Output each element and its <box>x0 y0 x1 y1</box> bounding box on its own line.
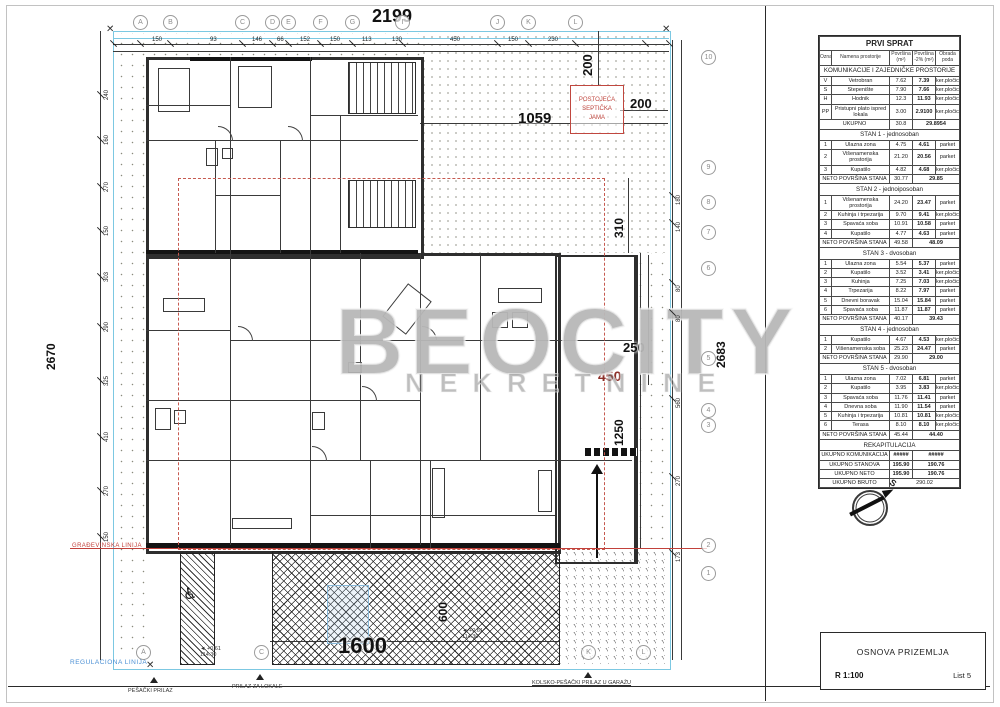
bathtub <box>155 408 171 430</box>
cell-floor: ker.pločice <box>936 278 960 287</box>
sink <box>222 148 233 159</box>
grid-bubble-C: C <box>235 15 250 30</box>
grid-bubble-3: 3 <box>701 418 716 433</box>
dim-bottom-total: 1600 <box>338 633 387 659</box>
table-section: STAN 3 - dvosoban <box>820 248 960 259</box>
dim-label: 450 <box>450 37 460 43</box>
grid-bubble-K: K <box>521 15 536 30</box>
cell-area-net: 7.03 <box>913 278 936 287</box>
cell-room: Ulazna zona <box>832 259 890 268</box>
cell-code: 2 <box>820 150 832 166</box>
cell-total-v1: 29.90 <box>890 354 913 363</box>
cell-floor: parket <box>936 402 960 411</box>
table-row: HHodnik12.311.93ker.pločice <box>820 95 960 104</box>
cell-code: 2 <box>820 384 832 393</box>
table-recap-row: UKUPNO KOMUNIKACIJA########## <box>820 451 960 460</box>
table-section: STAN 5 - dvosoban <box>820 363 960 374</box>
cell-floor: parket <box>936 296 960 305</box>
dim-label: 560 <box>676 398 682 408</box>
table-row: 2Kuhinja i trpezarija9.709.41ker.pločice <box>820 211 960 220</box>
table-recap-row: UKUPNO STANOVA195.90190.76 <box>820 460 960 469</box>
cell-code: 4 <box>820 402 832 411</box>
cell-room: Ulazna zona <box>832 140 890 149</box>
grid-bubble-L: L <box>568 15 583 30</box>
cell-code: 6 <box>820 421 832 430</box>
grid-bubble-6: 6 <box>701 261 716 276</box>
cell-total-v2: 29.85 <box>913 175 960 184</box>
cell-code: 3 <box>820 278 832 287</box>
cell-area-net: 7.66 <box>913 86 936 95</box>
table-total-row: NETO POVRŠINA STANA40.1739.43 <box>820 315 960 324</box>
cell-area-net: 5.37 <box>913 259 936 268</box>
dim-label: 290 <box>104 322 110 332</box>
garage-access-label: KOLSKO-PEŠAČKI PRILAZ U GARAŽU <box>532 680 631 686</box>
wall <box>190 57 312 61</box>
cell-area: 4.67 <box>890 335 913 344</box>
cell-recap-label: UKUPNO KOMUNIKACIJA <box>820 451 890 460</box>
staircase <box>348 62 416 114</box>
cell-area-net: 10.81 <box>913 412 936 421</box>
building-line-label: GRAĐEVINSKA LINIJA <box>72 543 142 549</box>
elev-abs-value: 114.30 <box>462 634 478 640</box>
table-row: 3Kuhinja7.257.03ker.pločice <box>820 278 960 287</box>
cell-code: 1 <box>820 259 832 268</box>
grid-bubble-J: J <box>490 15 505 30</box>
grid-bubble-7: 7 <box>701 225 716 240</box>
dim-label: 230 <box>548 37 558 43</box>
septic-label-2: SEPTIČKA <box>582 105 612 114</box>
cell-total-v1: 49.58 <box>890 239 913 248</box>
cell-code: 1 <box>820 140 832 149</box>
cell-area: 11.76 <box>890 393 913 402</box>
grid-bubble-D: D <box>265 15 280 30</box>
cell-total-label: UKUPNO <box>820 120 890 129</box>
sheet-number: List 5 <box>953 671 971 680</box>
cell-code: 5 <box>820 296 832 305</box>
partition <box>310 115 418 116</box>
table-row: 4Trpezarija8.227.97parket <box>820 287 960 296</box>
dim-label: 240 <box>104 90 110 100</box>
cell-code: 4 <box>820 287 832 296</box>
dim-plot: 1059 <box>518 110 551 127</box>
spot-elevation: ◄ +0.61 114.30 <box>200 646 221 658</box>
cell-area-net: 4.53 <box>913 335 936 344</box>
dim-label: 410 <box>104 432 110 442</box>
cell-area-net: 2.9100 <box>913 104 936 120</box>
cell-room: Višenamenska prostorija <box>832 195 890 211</box>
dim-label: 150 <box>152 37 162 43</box>
cell-floor: parket <box>936 306 960 315</box>
cell-area: 11.87 <box>890 306 913 315</box>
partition <box>146 140 418 141</box>
cell-bruto-value: 290.02 <box>890 479 960 488</box>
cell-floor: ker.pločice <box>936 76 960 85</box>
north-arrow: S <box>840 478 900 534</box>
elev-abs-value: 114.30 <box>200 652 216 658</box>
cell-room: Spavaća soba <box>832 393 890 402</box>
cell-room: Kuhinja <box>832 278 890 287</box>
cell-recap-v1: ##### <box>890 451 913 460</box>
spot-elevation: ◄ +0.61 114.30 <box>462 628 483 640</box>
cell-area: 7.25 <box>890 278 913 287</box>
cell-floor: ker.pločice <box>936 384 960 393</box>
table-total-row: NETO POVRŠINA STANA49.5848.09 <box>820 239 960 248</box>
cell-area-net: 6.81 <box>913 374 936 383</box>
cell-area-net: 3.41 <box>913 268 936 277</box>
cell-room: Terasa <box>832 421 890 430</box>
cell-floor: parket <box>936 287 960 296</box>
table-row: 3Kupatilo4.824.68ker.pločice <box>820 165 960 174</box>
wheelchair-icon: ♿ <box>183 584 197 604</box>
dim-label: 150 <box>330 37 340 43</box>
cell-area: 3.52 <box>890 268 913 277</box>
cell-room: Spavaća soba <box>832 220 890 229</box>
table-row: 2Višenamenska soba25.2324.47parket <box>820 345 960 354</box>
grid-bubble-G: G <box>345 15 360 30</box>
grid-bubble-bottom-L: L <box>636 645 651 660</box>
cell-floor: parket <box>936 140 960 149</box>
cell-floor: ker.pločice <box>936 165 960 174</box>
regulation-line-label: REGULACIONA LINIJA <box>70 659 147 666</box>
toilet <box>206 148 218 166</box>
cell-area-net: 10.58 <box>913 220 936 229</box>
cell-total-v2: 39.43 <box>913 315 960 324</box>
cell-recap-label: UKUPNO STANOVA <box>820 460 890 469</box>
pedestrian-access-label: PEŠAČKI PRILAZ <box>128 688 173 694</box>
cell-recap-v2: 190.76 <box>913 460 960 469</box>
cell-room: Pristupni plato ispred lokala <box>832 104 890 120</box>
cell-area-net: 3.83 <box>913 384 936 393</box>
dim-label: 270 <box>104 486 110 496</box>
septic-tank-box: POSTOJEĆA SEPTIČKA JAMA <box>570 85 624 134</box>
table-row: 2Kupatilo3.523.41ker.pločice <box>820 268 960 277</box>
cell-total-v1: 30.8 <box>890 120 913 129</box>
cell-total-label: NETO POVRŠINA STANA <box>820 239 890 248</box>
locals-access-label: PRILAZ ZA LOKALE <box>232 684 282 690</box>
cell-room: Kuhinja i trpezarija <box>832 211 890 220</box>
dim-line <box>628 178 629 253</box>
dim-label: 150 <box>508 37 518 43</box>
dim-label: 150 <box>104 226 110 236</box>
grid-bubble-I: I <box>395 15 410 30</box>
dim-label: 160 <box>104 135 110 145</box>
cell-code: 1 <box>820 195 832 211</box>
cell-area: 24.20 <box>890 195 913 211</box>
cell-area: 8.22 <box>890 287 913 296</box>
grid-bubble-8: 8 <box>701 195 716 210</box>
access-marker <box>256 674 264 680</box>
cell-code: 2 <box>820 211 832 220</box>
cell-area: 5.54 <box>890 259 913 268</box>
bed <box>238 66 272 108</box>
dim-310: 310 <box>612 218 626 238</box>
cell-area: 3.95 <box>890 384 913 393</box>
grid-bubble-1: 1 <box>701 566 716 581</box>
table-row: 2Kupatilo3.953.83ker.pločice <box>820 384 960 393</box>
cell-code: 5 <box>820 412 832 421</box>
cell-area-net: 15.84 <box>913 296 936 305</box>
dim-label: 325 <box>104 376 110 386</box>
table-row: 6Spavaća soba11.8711.87parket <box>820 306 960 315</box>
cell-area: 3.00 <box>890 104 913 120</box>
cell-floor: ker.pločice <box>936 268 960 277</box>
cell-floor: parket <box>936 259 960 268</box>
cell-area: 9.70 <box>890 211 913 220</box>
corner-mark: ✕ <box>662 24 670 35</box>
cell-floor: ker.pločice <box>936 412 960 421</box>
dim-label: 80 <box>676 315 682 322</box>
table-row: 3Spavaća soba11.7611.41parket <box>820 393 960 402</box>
cell-recap-v1: 195.90 <box>890 460 913 469</box>
cell-area-net: 9.41 <box>913 211 936 220</box>
table-row: VVetrobran7.627.39ker.pločice <box>820 76 960 85</box>
table-row: 1Ulazna zona4.754.61parket <box>820 140 960 149</box>
grid-bubble-bottom-A: A <box>136 645 151 660</box>
cell-room: Stepenište <box>832 86 890 95</box>
cell-floor: ker.pločice <box>936 211 960 220</box>
cell-room: Hodnik <box>832 95 890 104</box>
dim-line <box>113 44 669 45</box>
dim-label: 113 <box>362 37 372 43</box>
table-section: STAN 4 - jednosoban <box>820 324 960 335</box>
cell-code: 3 <box>820 220 832 229</box>
dim-label: 180 <box>676 195 682 205</box>
table-row: PPPristupni plato ispred lokala3.002.910… <box>820 104 960 120</box>
cell-code: 2 <box>820 345 832 354</box>
cell-code: 2 <box>820 268 832 277</box>
cell-area: 21.20 <box>890 150 913 166</box>
cell-area-net: 11.93 <box>913 95 936 104</box>
cell-room: Vetrobran <box>832 76 890 85</box>
cell-area-net: 4.61 <box>913 140 936 149</box>
septic-label-1: POSTOJEĆA <box>579 96 615 105</box>
grid-bubble-A: A <box>133 15 148 30</box>
table-row: 1Ulazna zona5.545.37parket <box>820 259 960 268</box>
cell-area-net: 23.47 <box>913 195 936 211</box>
dim-label: 152 <box>300 37 310 43</box>
corner-mark: ✕ <box>106 24 114 35</box>
table-row: 3Spavaća soba10.9110.58parket <box>820 220 960 229</box>
table-row: 4Dnevna soba11.9011.54parket <box>820 402 960 411</box>
cell-area-net: 11.87 <box>913 306 936 315</box>
cell-code: 1 <box>820 335 832 344</box>
dim-label: 66 <box>277 37 284 43</box>
cell-code: V <box>820 76 832 85</box>
cell-area-net: 4.68 <box>913 165 936 174</box>
table-header: Namena prostorije <box>832 51 890 66</box>
grid-bubble-2: 2 <box>701 538 716 553</box>
table-section: KOMUNIKACIJE I ZAJEDNIČKE PROSTORIJE <box>820 65 960 76</box>
dim-septic-h: 200 <box>630 96 652 111</box>
table-row: 5Kuhinja i trpezarija10.8110.81ker.ploči… <box>820 412 960 421</box>
cell-area: 7.02 <box>890 374 913 383</box>
grid-bubble-E: E <box>281 15 296 30</box>
dim-label: 80 <box>676 285 682 292</box>
dim-left-total: 2670 <box>44 343 58 370</box>
cell-recap-v2: 190.76 <box>913 469 960 478</box>
cell-code: 3 <box>820 165 832 174</box>
cell-code: 6 <box>820 306 832 315</box>
table-row: 4Kupatilo4.774.63parket <box>820 229 960 238</box>
cell-floor: ker.pločice <box>936 95 960 104</box>
dim-label: 140 <box>676 222 682 232</box>
grid-bubble-5: 5 <box>701 351 716 366</box>
sheet-title: OSNOVA PRIZEMLJA <box>821 647 985 657</box>
cell-area-net: 7.39 <box>913 76 936 85</box>
cell-total-label: NETO POVRŠINA STANA <box>820 430 890 439</box>
corner-mark: ✕ <box>146 660 154 671</box>
cell-area: 10.91 <box>890 220 913 229</box>
table-total-row: UKUPNO30.829.8954 <box>820 120 960 129</box>
table-section: STAN 1 - jednosoban <box>820 129 960 140</box>
grid-bubble-B: B <box>163 15 178 30</box>
cell-floor: ker.pločice <box>936 335 960 344</box>
cell-floor: ker.pločice <box>936 104 960 120</box>
cell-recap-v2: ##### <box>913 451 960 460</box>
cell-area: 15.04 <box>890 296 913 305</box>
cell-floor: ker.pločice <box>936 421 960 430</box>
cell-area-net: 24.47 <box>913 345 936 354</box>
cell-code: 4 <box>820 229 832 238</box>
cell-room: Trpezarija <box>832 287 890 296</box>
grid-bubble-4: 4 <box>701 403 716 418</box>
dim-label: 270 <box>676 476 682 486</box>
dim-label: 150 <box>104 532 110 542</box>
dim-label: 146 <box>252 37 262 43</box>
dim-600: 600 <box>436 602 450 622</box>
dim-label: 303 <box>104 272 110 282</box>
cell-room: Dnevni boravak <box>832 296 890 305</box>
cell-room: Kuhinja i trpezarija <box>832 412 890 421</box>
cell-total-label: NETO POVRŠINA STANA <box>820 354 890 363</box>
cell-floor: parket <box>936 374 960 383</box>
cell-total-label: NETO POVRŠINA STANA <box>820 175 890 184</box>
cell-floor: parket <box>936 195 960 211</box>
dim-line <box>598 31 599 85</box>
dim-1250: 1250 <box>612 419 626 446</box>
table-total-row: NETO POVRŠINA STANA30.7729.85 <box>820 175 960 184</box>
cell-area: 12.3 <box>890 95 913 104</box>
cell-area-net: 4.63 <box>913 229 936 238</box>
dim-label: 173 <box>676 552 682 562</box>
cell-room: Dnevna soba <box>832 402 890 411</box>
table-section: REKAPITULACIJA <box>820 440 960 451</box>
grid-bubble-9: 9 <box>701 160 716 175</box>
cell-area: 11.90 <box>890 402 913 411</box>
cell-room: Kupatilo <box>832 384 890 393</box>
grid-bubble-bottom-K: K <box>581 645 596 660</box>
table-row: 1Višenamenska prostorija24.2023.47parket <box>820 195 960 211</box>
grid-bubble-bottom-C: C <box>254 645 269 660</box>
dim-label: 270 <box>104 182 110 192</box>
access-marker <box>150 677 158 683</box>
cell-floor: parket <box>936 345 960 354</box>
cell-code: H <box>820 95 832 104</box>
cell-area-net: 11.54 <box>913 402 936 411</box>
cell-code: 1 <box>820 374 832 383</box>
cell-room: Kupatilo <box>832 165 890 174</box>
cell-total-v1: 45.44 <box>890 430 913 439</box>
access-marker <box>584 672 592 678</box>
cell-code: PP <box>820 104 832 120</box>
cell-area: 8.10 <box>890 421 913 430</box>
cell-floor: parket <box>936 229 960 238</box>
area-table: PRVI SPRATOznakaNamena prostorijePovršin… <box>818 35 961 489</box>
table-header: Površina (m²) <box>890 51 913 66</box>
table-row: 6Terasa8.108.10ker.pločice <box>820 421 960 430</box>
table-row: 5Dnevni boravak15.0415.84parket <box>820 296 960 305</box>
cell-total-v1: 30.77 <box>890 175 913 184</box>
table-row: SStepenište7.907.66ker.pločice <box>820 86 960 95</box>
cell-room: Ulazna zona <box>832 374 890 383</box>
table-section: STAN 2 - jednoiposoban <box>820 184 960 195</box>
grid-bubble-10: 10 <box>701 50 716 65</box>
dim-line <box>100 31 101 660</box>
cell-room: Višenamenska prostorija <box>832 150 890 166</box>
cell-floor: ker.pločice <box>936 86 960 95</box>
cell-area: 7.90 <box>890 86 913 95</box>
cell-area: 4.82 <box>890 165 913 174</box>
floor-plan-sheet: ♿ GRAĐEVINSKA LINIJA POSTOJEĆA SEPTIČKA … <box>0 0 1000 707</box>
grid-bubble-F: F <box>313 15 328 30</box>
title-block: OSNOVA PRIZEMLJA R 1:100 List 5 <box>820 632 986 690</box>
north-label: S <box>888 477 899 489</box>
cell-total-v2: 29.00 <box>913 354 960 363</box>
table-header: Površina -2% (m²) <box>913 51 936 66</box>
cell-area-net: 11.41 <box>913 393 936 402</box>
septic-label-3: JAMA <box>589 114 605 123</box>
cell-room: Kupatilo <box>832 268 890 277</box>
sheet-scale: R 1:100 <box>835 671 863 680</box>
cell-code: 3 <box>820 393 832 402</box>
table-total-row: NETO POVRŠINA STANA29.9029.00 <box>820 354 960 363</box>
table-header: Obrada poda <box>936 51 960 66</box>
cell-room: Višenamenska soba <box>832 345 890 354</box>
cell-total-v1: 40.17 <box>890 315 913 324</box>
table-total-row: NETO POVRŠINA STANA45.4444.40 <box>820 430 960 439</box>
table-title: PRVI SPRAT <box>820 37 960 51</box>
cell-room: Kupatilo <box>832 335 890 344</box>
cell-total-v2: 44.40 <box>913 430 960 439</box>
dim-label: 93 <box>210 37 217 43</box>
cell-room: Kupatilo <box>832 229 890 238</box>
cell-room: Spavaća soba <box>832 306 890 315</box>
cell-total-v2: 48.09 <box>913 239 960 248</box>
table-row: 1Kupatilo4.674.53ker.pločice <box>820 335 960 344</box>
cell-area: 4.75 <box>890 140 913 149</box>
bed <box>158 68 190 112</box>
watermark-subtitle: NEKRETNINE <box>405 368 731 399</box>
cell-total-label: NETO POVRŠINA STANA <box>820 315 890 324</box>
cell-area: 25.23 <box>890 345 913 354</box>
cell-floor: parket <box>936 220 960 229</box>
paved-area-hatch <box>272 551 560 665</box>
cell-area: 7.62 <box>890 76 913 85</box>
cell-area-net: 8.10 <box>913 421 936 430</box>
area-table-grid: PRVI SPRATOznakaNamena prostorijePovršin… <box>819 36 960 488</box>
table-row: 1Ulazna zona7.026.81parket <box>820 374 960 383</box>
parcel-inner-line <box>113 38 669 39</box>
table-header: Oznaka <box>820 51 832 66</box>
dim-line <box>113 51 669 52</box>
building-line <box>70 548 707 549</box>
cell-floor: parket <box>936 393 960 402</box>
cell-area: 10.81 <box>890 412 913 421</box>
cell-total-v2: 29.8954 <box>913 120 960 129</box>
dim-septic-v: 200 <box>580 54 595 76</box>
table-row: 2Višenamenska prostorija21.2020.56parket <box>820 150 960 166</box>
cell-code: S <box>820 86 832 95</box>
